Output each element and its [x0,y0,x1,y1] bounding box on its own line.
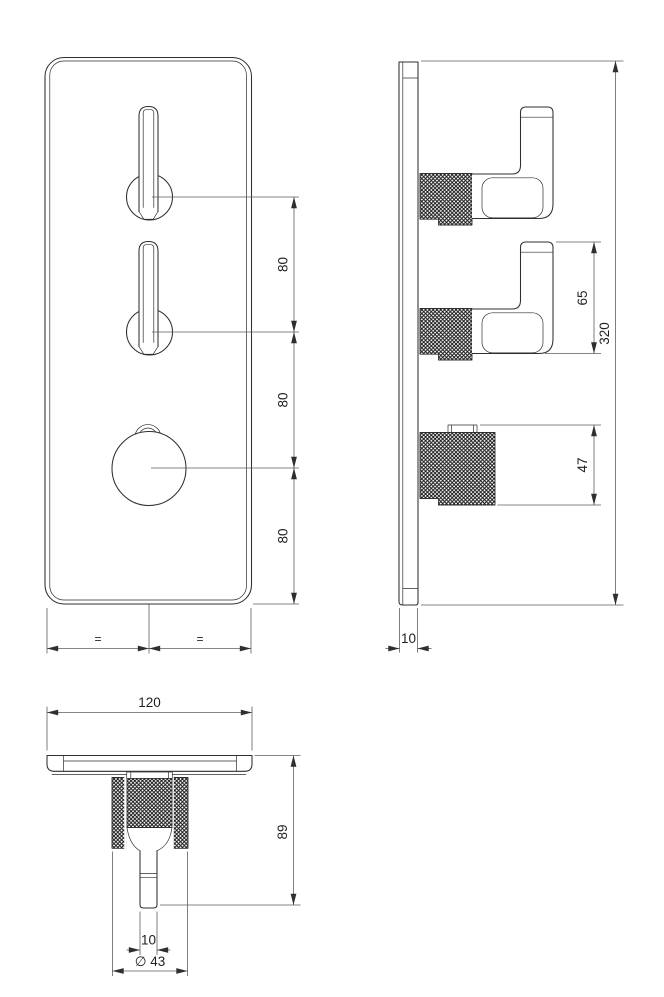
side-plate-outline [399,62,418,605]
front-view [45,58,252,605]
side-knob-knurled-body [420,433,495,506]
bottom-knob-tab [127,772,173,778]
bottom-view [47,756,252,909]
dim-label-plate-thickness: 10 [401,631,416,646]
side-view [399,62,553,605]
side-knob [420,425,495,505]
lever-stem [140,851,157,908]
side-view-dimensions: 320 65 47 10 [386,61,624,653]
side-lever-handle-top [420,107,553,225]
bottom-plate-outline [47,756,252,772]
dim-120-extension-lines [47,707,252,751]
dim-label-spacing-bottom: 80 [276,528,291,543]
dim-label-knob-diameter: ∅ 43 [135,954,166,969]
dim-label-total-depth: 89 [275,824,290,839]
side-knob-tab [448,425,477,433]
technical-drawing-page: 80 80 80 = = 320 65 47 10 [0,0,664,997]
lever-hub-knurl [127,778,172,827]
dim-label-lever-thickness: 10 [141,933,156,948]
dim-label-equal-right: = [196,632,203,646]
dim-label-knob-height: 47 [575,457,590,472]
dim-label-handle-height: 65 [575,290,590,305]
dim-label-plate-width: 120 [138,695,161,710]
equal-dim-extension-lines [47,605,251,654]
knob-outline [112,432,186,506]
side-lever-handle-middle [420,242,553,360]
dim-label-plate-height: 320 [597,322,612,345]
bottom-knob-assembly [112,772,188,908]
dim-label-spacing-top: 80 [276,257,291,272]
dim-label-spacing-mid: 80 [276,392,291,407]
mixer-technical-drawing: 80 80 80 = = 320 65 47 10 [0,0,664,997]
dim-label-equal-left: = [94,632,101,646]
